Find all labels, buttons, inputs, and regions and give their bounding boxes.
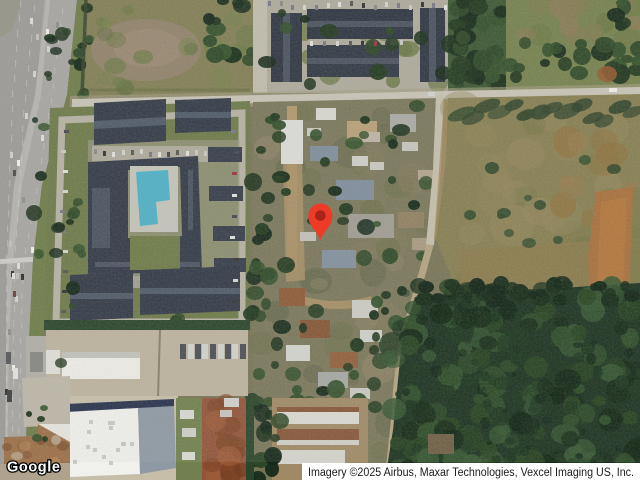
svg-text:Imagery ©2025 Airbus, Maxar Te: Imagery ©2025 Airbus, Maxar Technologies… xyxy=(308,467,634,479)
svg-text:Google: Google xyxy=(7,460,61,476)
